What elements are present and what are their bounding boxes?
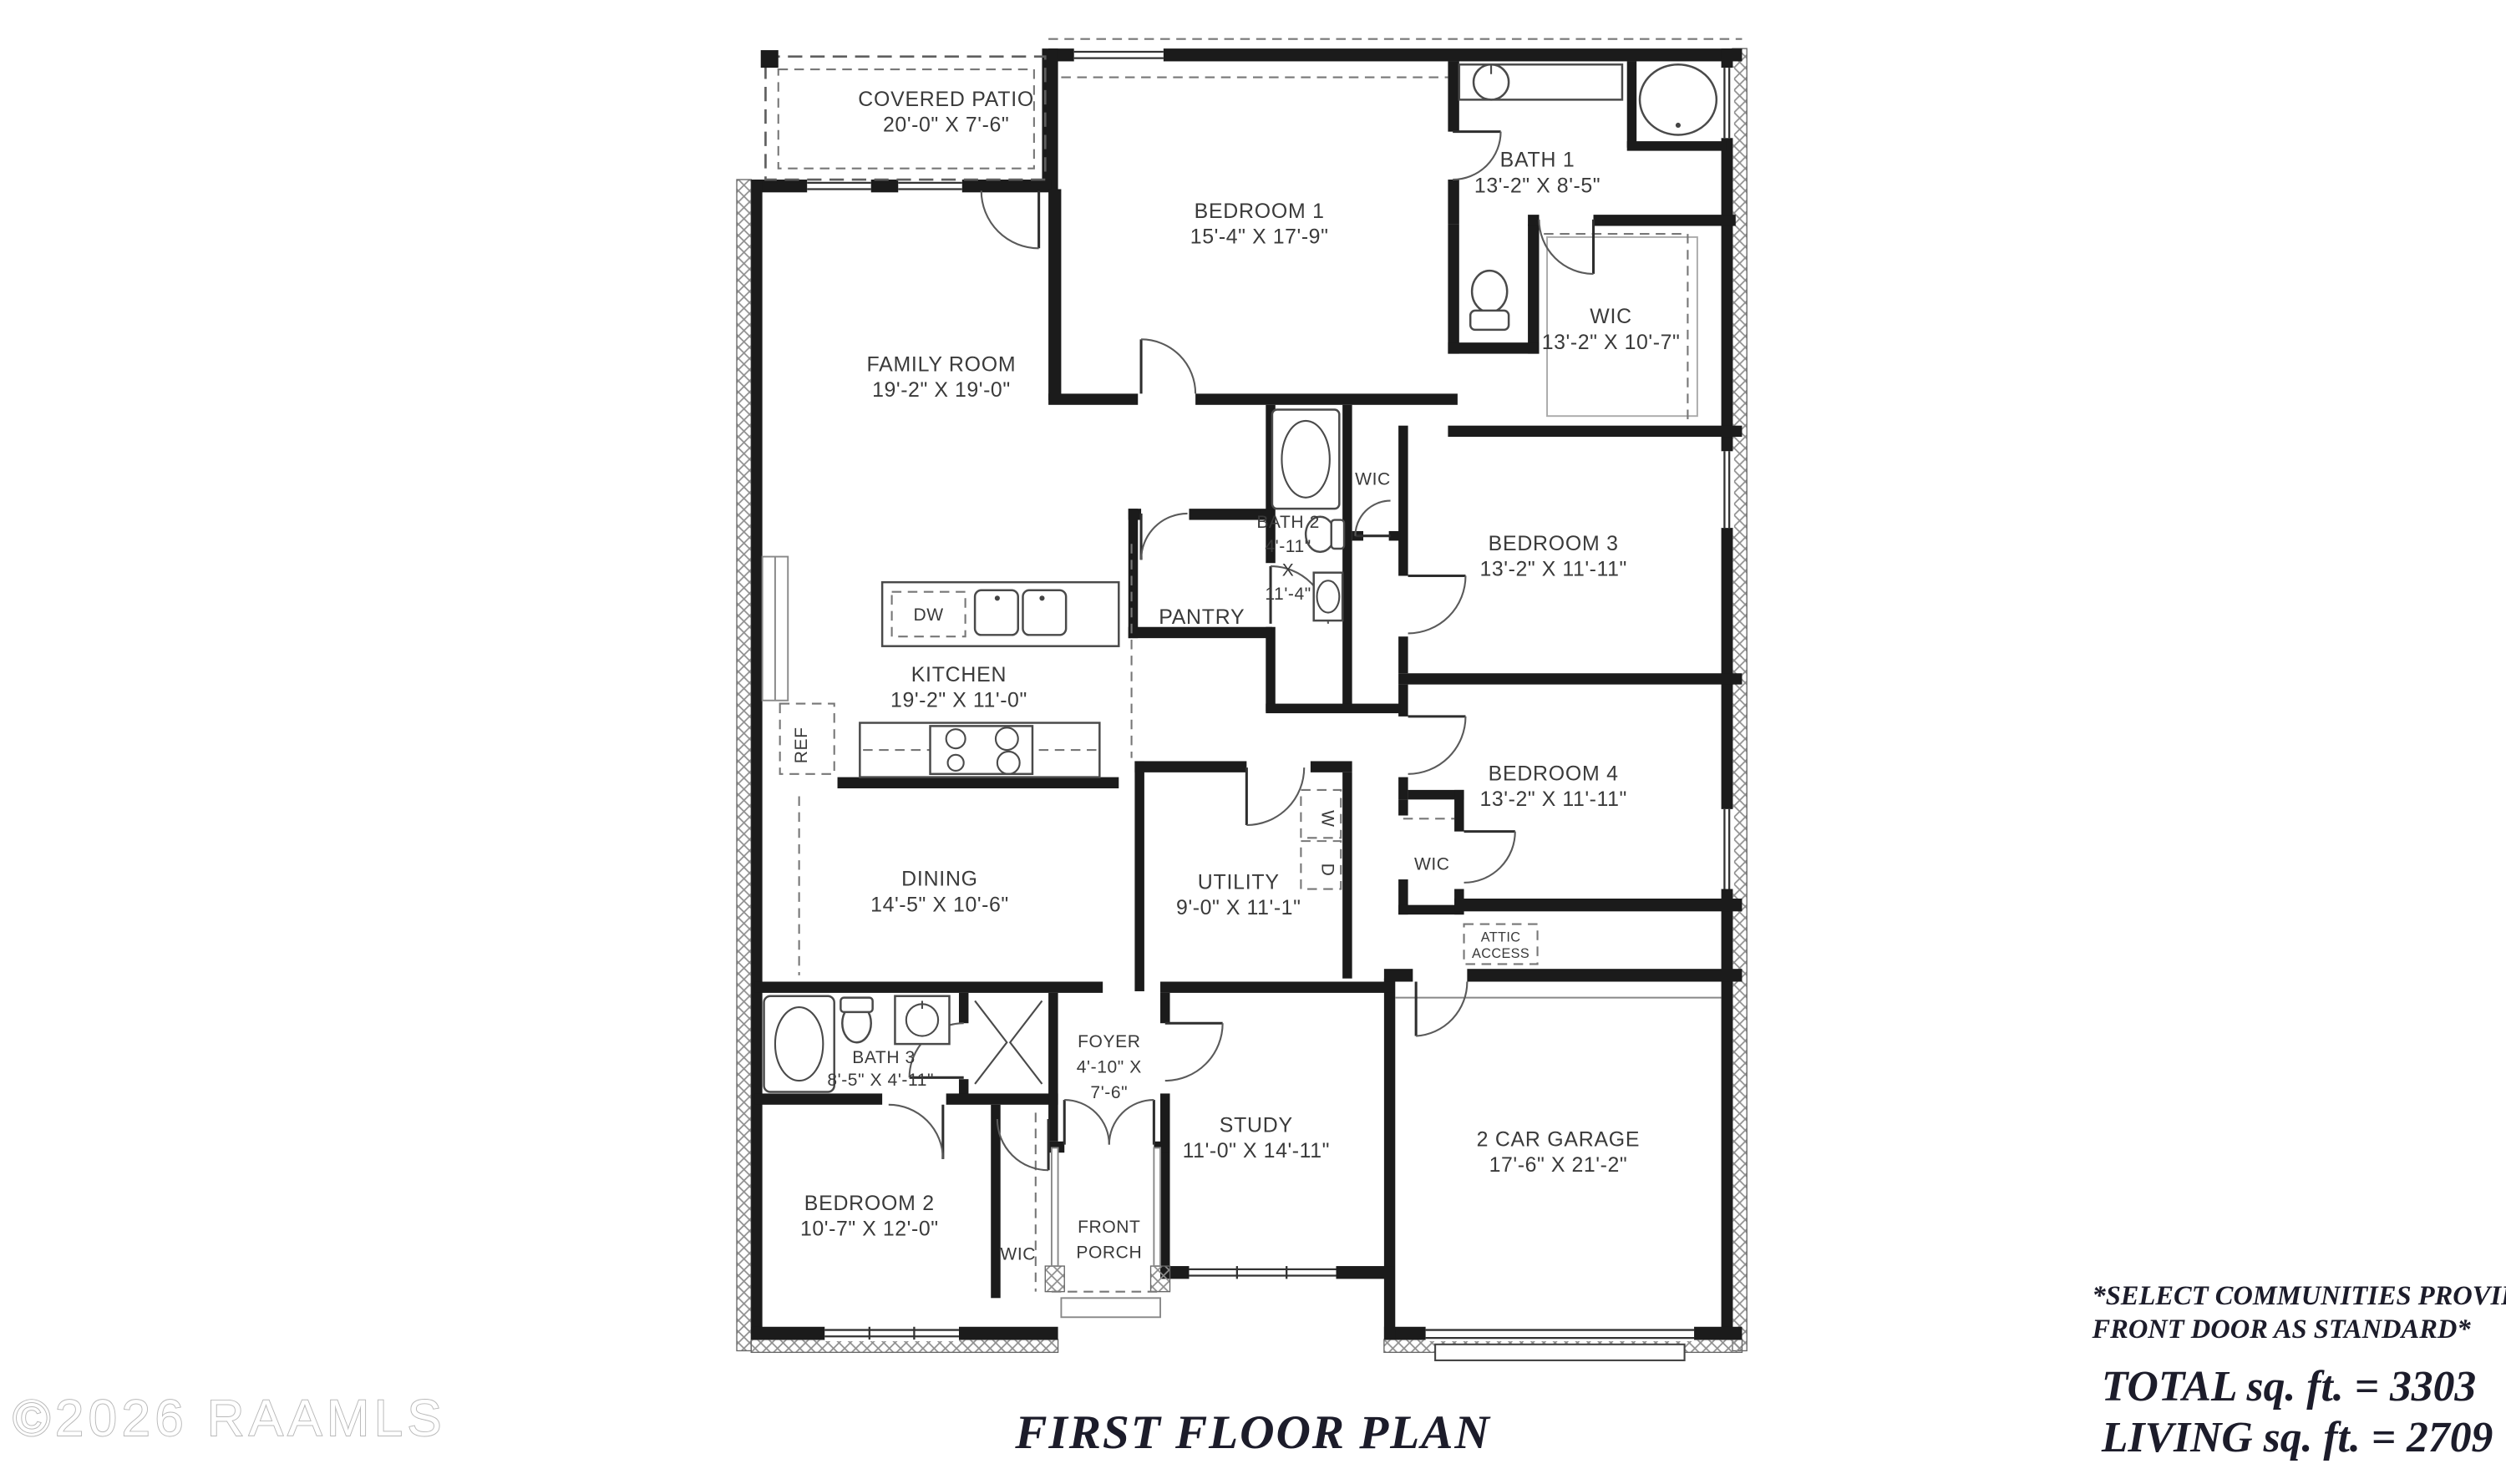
dims-bedroom-3: 13'-2" X 11'-11": [1480, 558, 1627, 581]
label-pantry: PANTRY: [1159, 605, 1245, 629]
annotations: ©2026 RAAMLS FIRST FLOOR PLAN *SELECT CO…: [13, 1281, 2506, 1461]
total-sqft: TOTAL sq. ft. = 3303: [2102, 1363, 2476, 1411]
label-front-porch-1: FRONT: [1078, 1218, 1140, 1237]
label-dw: DW: [914, 605, 944, 625]
label-wic-hall: WIC: [1355, 469, 1391, 489]
label-wic-primary: WIC: [1590, 305, 1632, 328]
label-foyer: FOYER: [1078, 1032, 1140, 1051]
dims-bedroom-4: 13'-2" X 11'-11": [1480, 788, 1627, 811]
dims-bath-1: 13'-2" X 8'-5": [1474, 174, 1600, 197]
label-kitchen: KITCHEN: [911, 663, 1007, 686]
label-washer: W: [1317, 810, 1337, 827]
toilet-icon: [1472, 271, 1507, 312]
dims-bath-2-w: 4'-11": [1265, 537, 1311, 556]
living-sqft: LIVING sq. ft. = 2709: [2101, 1414, 2493, 1461]
label-bedroom-4: BEDROOM 4: [1489, 762, 1619, 785]
dims-kitchen: 19'-2" X 11'-0": [890, 688, 1027, 712]
label-bath-3: BATH 3: [852, 1048, 916, 1067]
label-bedroom-2: BEDROOM 2: [804, 1192, 935, 1215]
label-family-room: FAMILY ROOM: [867, 353, 1017, 377]
label-attic-2: ACCESS: [1472, 946, 1529, 961]
label-bath-1: BATH 1: [1500, 149, 1575, 172]
dims-bath-3: 8'-5" X 4'-11": [827, 1071, 934, 1090]
label-covered-patio: COVERED PATIO: [858, 88, 1034, 111]
note-line2: FRONT DOOR AS STANDARD*: [2091, 1314, 2471, 1345]
dims-family-room: 19'-2" X 19'-0": [872, 378, 1011, 402]
dims-wic-primary: 13'-2" X 10'-7": [1542, 331, 1681, 354]
label-utility: UTILITY: [1198, 871, 1280, 894]
dims-foyer-2: 7'-6": [1090, 1083, 1128, 1102]
dims-bedroom-2: 10'-7" X 12'-0": [800, 1218, 939, 1241]
label-attic-1: ATTIC: [1481, 930, 1521, 945]
dims-foyer-1: 4'-10" X: [1077, 1058, 1142, 1077]
label-wic-bedroom2: WIC: [1000, 1244, 1036, 1264]
label-dryer: D: [1317, 864, 1337, 877]
dims-covered-patio: 20'-0" X 7'-6": [883, 114, 1009, 137]
label-bath-2: BATH 2: [1256, 513, 1320, 532]
dims-garage: 17'-6" X 21'-2": [1489, 1153, 1628, 1177]
floor-plan-canvas: COVERED PATIO 20'-0" X 7'-6" FAMILY ROOM…: [0, 0, 2506, 1484]
dims-bath-2-l: 11'-4": [1265, 585, 1311, 604]
label-bedroom-1: BEDROOM 1: [1195, 200, 1325, 223]
dims-utility: 9'-0" X 11'-1": [1176, 896, 1301, 919]
label-dining: DINING: [901, 868, 978, 891]
label-front-porch-2: PORCH: [1076, 1243, 1142, 1262]
label-study: STUDY: [1220, 1113, 1293, 1137]
floor-plan-page: COVERED PATIO 20'-0" X 7'-6" FAMILY ROOM…: [0, 0, 2506, 1484]
dims-bath-2-x: X: [1282, 561, 1295, 580]
label-wic-bedroom4: WIC: [1414, 855, 1450, 874]
note-line1: *SELECT COMMUNITIES PROVIDE 8’: [2092, 1281, 2506, 1311]
label-ref: REF: [792, 727, 811, 763]
watermark: ©2026 RAAMLS: [13, 1390, 446, 1446]
label-garage: 2 CAR GARAGE: [1477, 1128, 1641, 1152]
dims-dining: 14'-5" X 10'-6": [870, 893, 1009, 916]
dims-study: 11'-0" X 14'-11": [1183, 1139, 1330, 1162]
dims-bedroom-1: 15'-4" X 17'-9": [1190, 225, 1329, 249]
page-title: FIRST FLOOR PLAN: [1014, 1406, 1491, 1459]
label-bedroom-3: BEDROOM 3: [1489, 532, 1619, 555]
